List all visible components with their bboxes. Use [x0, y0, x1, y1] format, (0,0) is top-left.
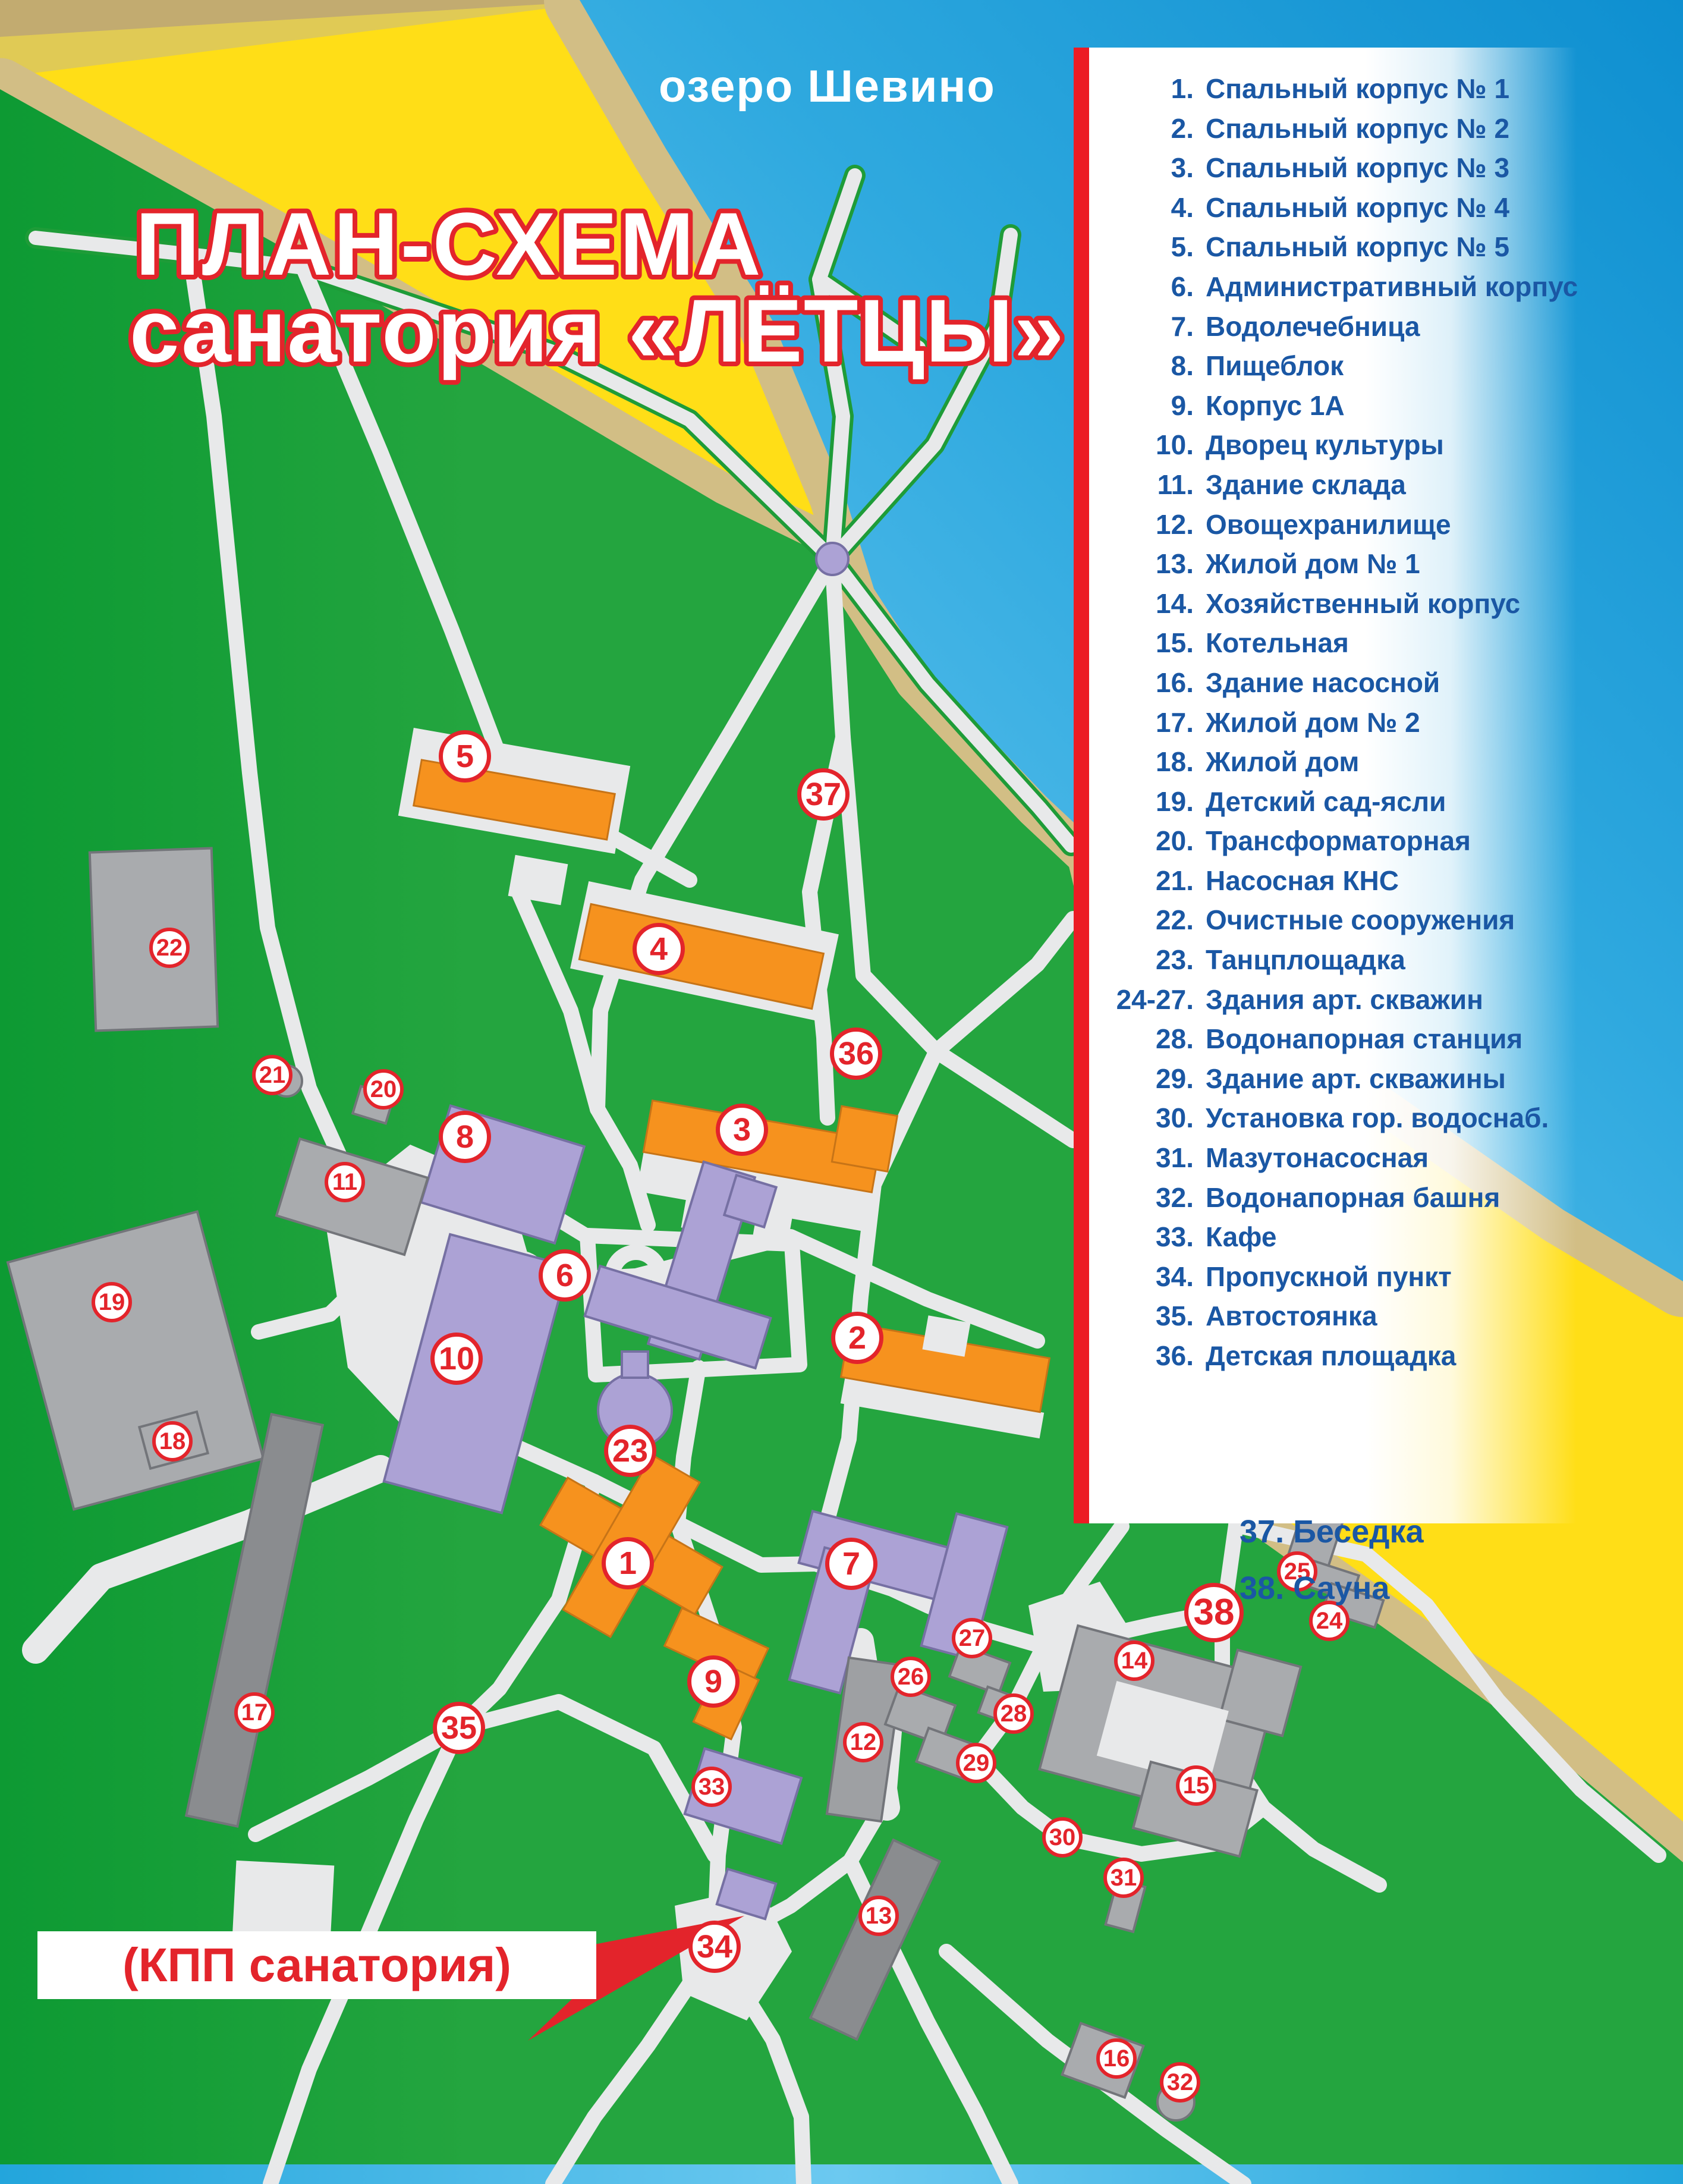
legend-item-number: 20. [1097, 825, 1206, 857]
legend-item: 3.Спальный корпус № 3 [1097, 152, 1559, 191]
legend-item-label: Хозяйственный корпус [1206, 587, 1520, 620]
legend-item-number: 16. [1097, 667, 1206, 699]
legend-item-label: Спальный корпус № 1 [1206, 73, 1509, 105]
legend-item-number: 30. [1097, 1102, 1206, 1134]
legend-item-label: Танцплощадка [1206, 944, 1405, 976]
legend-item: 15.Котельная [1097, 627, 1559, 667]
legend-item: 2.Спальный корпус № 2 [1097, 112, 1559, 152]
legend-item-number: 9. [1097, 389, 1206, 422]
legend-item: 21.Насосная КНС [1097, 865, 1559, 904]
legend-item: 34.Пропускной пункт [1097, 1261, 1559, 1300]
legend-item-label: Детский сад-ясли [1206, 785, 1446, 818]
legend-item-label: Установка гор. водоснаб. [1206, 1102, 1549, 1134]
legend-item-number: 28. [1097, 1023, 1206, 1055]
legend-item-label: Детская площадка [1206, 1340, 1456, 1372]
legend-item-label: Корпус 1А [1206, 389, 1345, 422]
legend-item-label: Здание насосной [1206, 667, 1440, 699]
legend-item-number: 31. [1097, 1142, 1206, 1174]
legend-panel: 1.Спальный корпус № 12.Спальный корпус №… [1074, 48, 1577, 1523]
legend-item-number: 12. [1097, 508, 1206, 540]
legend-item-number: 2. [1097, 112, 1206, 144]
legend-item-label: Спальный корпус № 2 [1206, 112, 1509, 144]
legend-item-number: 11. [1097, 469, 1206, 501]
legend-item: 4.Спальный корпус № 4 [1097, 191, 1559, 231]
legend-item-number: 13. [1097, 548, 1206, 580]
legend-item-number: 5. [1097, 231, 1206, 263]
legend-extra-item: 37. Беседка [1240, 1513, 1424, 1550]
legend-item: 23.Танцплощадка [1097, 944, 1559, 983]
legend-item: 6.Административный корпус [1097, 271, 1559, 310]
legend-item: 7.Водолечебница [1097, 310, 1559, 350]
legend-item: 32.Водонапорная башня [1097, 1181, 1559, 1221]
legend-item: 36.Детская площадка [1097, 1340, 1559, 1379]
legend-item: 22.Очистные сооружения [1097, 904, 1559, 944]
legend-item-number: 33. [1097, 1221, 1206, 1253]
legend-item-number: 1. [1097, 73, 1206, 105]
map-poster: { "title": { "line1": "ПЛАН-СХЕМА", "lin… [0, 0, 1683, 2184]
legend-item-number: 32. [1097, 1181, 1206, 1214]
legend-list: 1.Спальный корпус № 12.Спальный корпус №… [1097, 73, 1559, 1379]
legend-item-number: 22. [1097, 904, 1206, 936]
legend-item: 5.Спальный корпус № 5 [1097, 231, 1559, 271]
legend-item-label: Котельная [1206, 627, 1349, 659]
legend-item: 8.Пищеблок [1097, 350, 1559, 389]
legend-item: 18.Жилой дом [1097, 746, 1559, 785]
legend-item-number: 17. [1097, 706, 1206, 739]
water-tower-32 [1157, 2084, 1194, 2120]
legend-item-label: Жилой дом [1206, 746, 1359, 778]
legend-item-number: 15. [1097, 627, 1206, 659]
legend-item-label: Автостоянка [1206, 1300, 1377, 1332]
legend-item-number: 4. [1097, 191, 1206, 224]
legend-item-label: Дворец культуры [1206, 429, 1444, 461]
legend-item: 13.Жилой дом № 1 [1097, 548, 1559, 587]
legend-item: 12.Овощехранилище [1097, 508, 1559, 548]
lake-label: озеро Шевино [659, 61, 996, 112]
legend-item-label: Пищеблок [1206, 350, 1344, 382]
bottom-strip [0, 2164, 1683, 2184]
legend-item: 11.Здание склада [1097, 469, 1559, 508]
legend-item-label: Водонапорная станция [1206, 1023, 1522, 1055]
legend-item-number: 21. [1097, 865, 1206, 897]
legend-item-label: Водонапорная башня [1206, 1181, 1500, 1214]
pump-21 [271, 1066, 302, 1096]
legend-item-label: Административный корпус [1206, 271, 1578, 303]
legend-item-label: Насосная КНС [1206, 865, 1399, 897]
legend-item-number: 23. [1097, 944, 1206, 976]
legend-item-number: 14. [1097, 587, 1206, 620]
legend-item-label: Здания арт. скважин [1206, 983, 1483, 1016]
legend-item-label: Жилой дом № 1 [1206, 548, 1420, 580]
legend-item-number: 34. [1097, 1261, 1206, 1293]
legend-item-number: 18. [1097, 746, 1206, 778]
legend-item-label: Здание арт. скважины [1206, 1063, 1506, 1095]
legend-item: 24-27.Здания арт. скважин [1097, 983, 1559, 1023]
legend-item: 10.Дворец культуры [1097, 429, 1559, 469]
legend-item-number: 36. [1097, 1340, 1206, 1372]
legend-item-label: Очистные сооружения [1206, 904, 1515, 936]
legend-item: 19.Детский сад-ясли [1097, 785, 1559, 825]
legend-item-label: Мазутонасосная [1206, 1142, 1429, 1174]
kpp-label: (КПП санатория) [122, 1938, 511, 1993]
legend-item-label: Спальный корпус № 4 [1206, 191, 1509, 224]
legend-item-number: 3. [1097, 152, 1206, 184]
legend-item-label: Спальный корпус № 5 [1206, 231, 1509, 263]
legend-item: 29.Здание арт. скважины [1097, 1063, 1559, 1102]
legend-item-number: 29. [1097, 1063, 1206, 1095]
legend-item-label: Спальный корпус № 3 [1206, 152, 1509, 184]
legend-item-number: 6. [1097, 271, 1206, 303]
legend-item: 33.Кафе [1097, 1221, 1559, 1261]
legend-item: 9.Корпус 1А [1097, 389, 1559, 429]
title-line2: санатория «ЛЁТЦЫ» [130, 281, 1065, 381]
legend-item: 14.Хозяйственный корпус [1097, 587, 1559, 627]
kpp-label-box: (КПП санатория) [37, 1931, 596, 1999]
legend-item: 28.Водонапорная станция [1097, 1023, 1559, 1063]
legend-item: 31.Мазутонасосная [1097, 1142, 1559, 1181]
legend-item: 1.Спальный корпус № 1 [1097, 73, 1559, 112]
legend-item-number: 8. [1097, 350, 1206, 382]
legend-item-label: Водолечебница [1206, 310, 1420, 342]
legend-item-label: Здание склада [1206, 469, 1406, 501]
legend-item: 17.Жилой дом № 2 [1097, 706, 1559, 746]
legend-item-number: 10. [1097, 429, 1206, 461]
legend-extra-item: 38. Сауна [1240, 1570, 1389, 1607]
building-22 [90, 848, 218, 1030]
legend-item: 20.Трансформаторная [1097, 825, 1559, 865]
legend-item-number: 7. [1097, 310, 1206, 342]
legend-item-number: 24-27. [1097, 983, 1206, 1016]
legend-item: 35.Автостоянка [1097, 1300, 1559, 1340]
legend-item-label: Пропускной пункт [1206, 1261, 1452, 1293]
legend-item-label: Овощехранилище [1206, 508, 1451, 540]
legend-item: 16.Здание насосной [1097, 667, 1559, 706]
legend-item-number: 35. [1097, 1300, 1206, 1332]
legend-item-label: Трансформаторная [1206, 825, 1471, 857]
legend-item-label: Жилой дом № 2 [1206, 706, 1420, 739]
legend-stripe [1074, 48, 1089, 1523]
gazebo-dot [816, 543, 848, 575]
legend-item-label: Кафе [1206, 1221, 1276, 1253]
legend-item-number: 19. [1097, 785, 1206, 818]
legend-item: 30.Установка гор. водоснаб. [1097, 1102, 1559, 1142]
title-line1: ПЛАН-СХЕМА [136, 194, 763, 294]
